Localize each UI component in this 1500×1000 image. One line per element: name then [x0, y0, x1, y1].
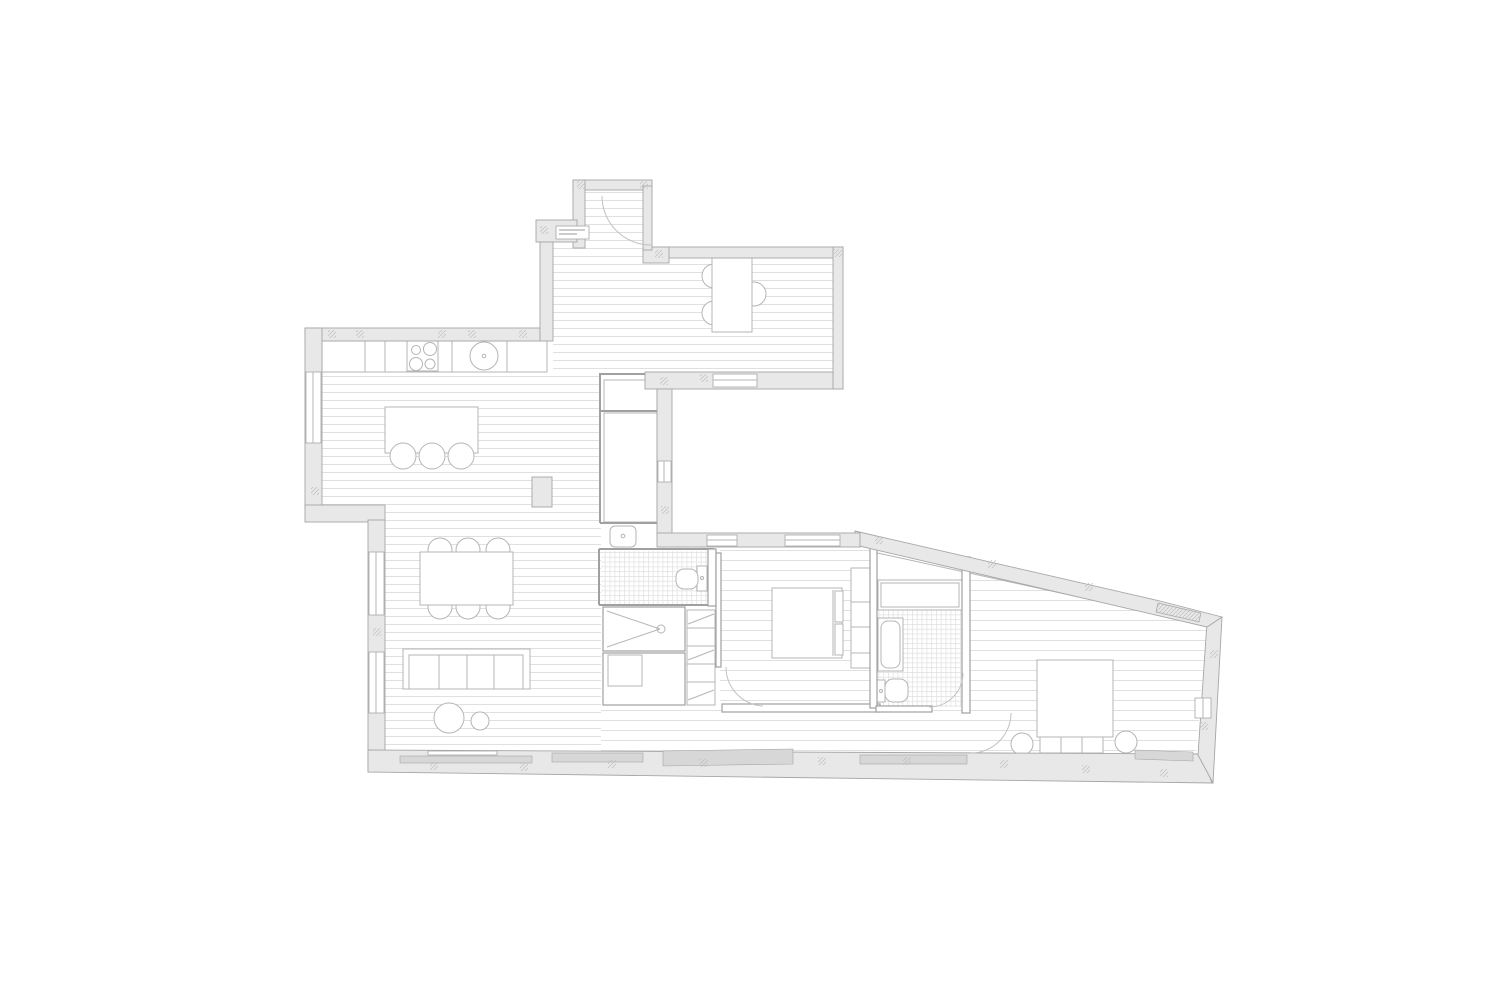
bed-2-headboard [1040, 737, 1103, 753]
wall-bedroom-1-left [716, 553, 721, 667]
wall-hatch [1210, 650, 1218, 658]
wall-hatch [438, 330, 446, 338]
toilet-2-bowl [885, 679, 908, 702]
wall-hatch [640, 181, 648, 189]
wall-terrace-top [653, 247, 843, 258]
bar-stool [390, 443, 416, 469]
wall-hatch [373, 628, 381, 636]
toilet-1-bowl [676, 569, 698, 589]
glazing-strip [552, 753, 643, 762]
wall-entry-right [643, 186, 652, 250]
bathroom-2-counter [878, 580, 962, 610]
wall-bedroom-1-bottom [722, 704, 880, 712]
toilet-2-tank [877, 680, 885, 702]
utility-closet [603, 653, 685, 705]
coffee-table-large [434, 703, 464, 733]
wall-bathroom-1-right [708, 549, 716, 606]
terrace-table [712, 257, 752, 332]
wall-kitchen-east [540, 242, 553, 341]
bar-stool [448, 443, 474, 469]
wall-hatch [328, 330, 336, 338]
wall-hatch [577, 181, 585, 189]
wall-hatch [875, 536, 883, 544]
coffee-table-small [471, 712, 489, 730]
wall-hatch [1160, 769, 1168, 777]
laundry-cabinet-tall [604, 413, 657, 522]
laundry-sink [610, 526, 636, 547]
wall-hatch [311, 487, 319, 495]
wall-hatch [1082, 765, 1090, 773]
glazing-strip [860, 755, 967, 764]
structural-column [532, 477, 552, 507]
wall-hatch [519, 330, 527, 338]
wall-hatch [520, 763, 528, 771]
wall-terrace-right [833, 247, 843, 389]
bar-stool [419, 443, 445, 469]
wall-west-step [305, 505, 385, 522]
entry-annotation-box [556, 226, 589, 239]
floor-terrace [553, 247, 833, 373]
wall-hatch [660, 377, 668, 385]
window-sill-living [428, 751, 497, 755]
wall-hatch [903, 757, 911, 765]
glazing-strip [400, 756, 532, 763]
floor-plan-svg [0, 0, 1500, 1000]
wall-bathroom-2-bottom [876, 706, 932, 712]
dining-table [420, 552, 513, 605]
bed-1-pillow [835, 624, 843, 655]
wall-hatch [661, 506, 669, 514]
wall-hatch [540, 226, 548, 234]
wall-hatch [700, 374, 708, 382]
wall-hatch [1000, 760, 1008, 768]
wall-bathroom-2-right [962, 557, 970, 713]
bed-1-pillow [835, 591, 843, 622]
wall-hatch [818, 757, 826, 765]
apartment-floor-plan-page [0, 0, 1500, 1000]
wall-hatch [655, 250, 663, 258]
wall-hatch [356, 330, 364, 338]
nightstand [1011, 733, 1033, 755]
wall-bedroom-1-bathroom-2 [870, 545, 877, 708]
wall-hatch [834, 249, 842, 257]
bed-1 [772, 588, 842, 658]
bed-2 [1037, 660, 1113, 737]
wall-kitchen-north [305, 328, 540, 341]
wall-hatch [608, 760, 616, 768]
glazing-strip [663, 749, 793, 766]
wall-hatch [1085, 583, 1093, 591]
wall-hatch [1200, 722, 1208, 730]
floor-entry-vestibule [585, 190, 643, 250]
wall-hatch [988, 560, 996, 568]
wall-hatch [468, 330, 476, 338]
wall-hatch [430, 762, 438, 770]
glazing-strip [1135, 750, 1193, 761]
wall-hatch [700, 759, 708, 767]
nightstand [1115, 731, 1137, 753]
